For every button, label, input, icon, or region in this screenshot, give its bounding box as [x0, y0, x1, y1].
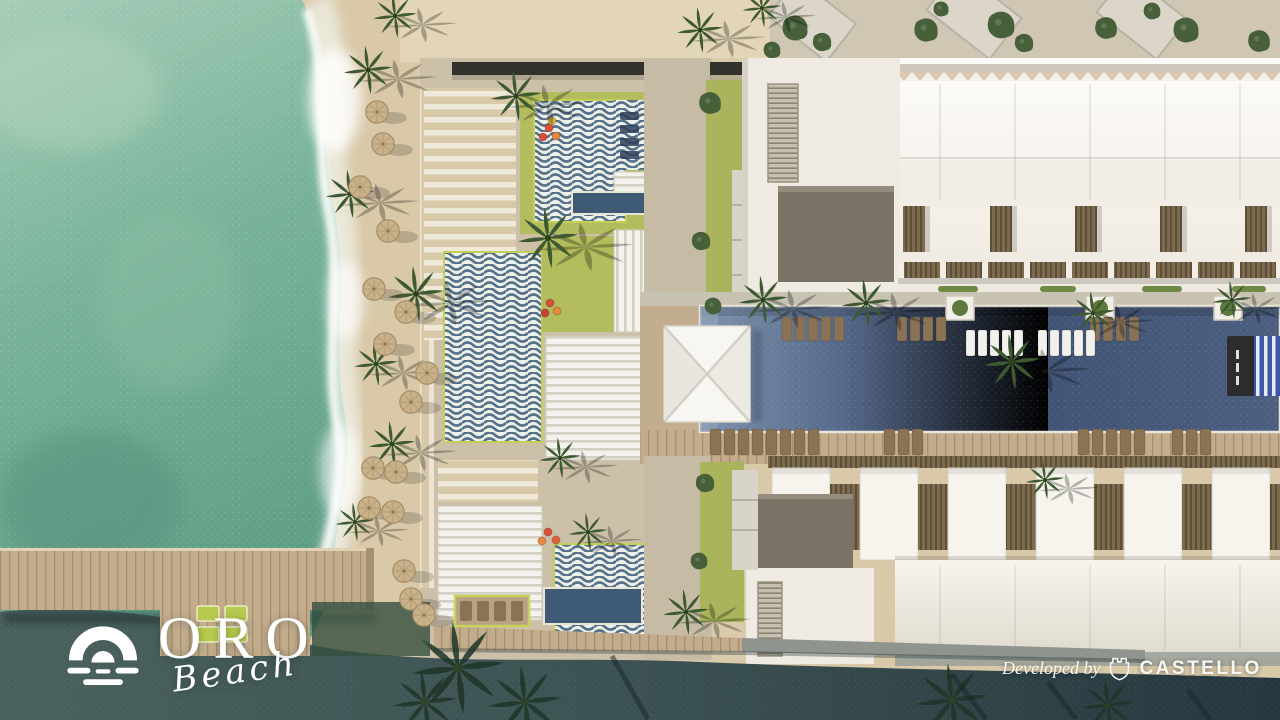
lounger-platform — [455, 596, 529, 626]
balcony-band-north — [898, 262, 1280, 278]
rooftop-box-south — [755, 494, 853, 568]
sun-lounger — [766, 429, 777, 455]
sun-lounger — [494, 601, 506, 621]
scalloped-shade-roof — [900, 72, 1280, 81]
villa-balcony — [1006, 484, 1036, 550]
balcony-divider — [898, 262, 904, 278]
sun-lounger — [1200, 429, 1211, 455]
sun-lounger — [1092, 429, 1103, 455]
sun-lounger — [1086, 330, 1095, 356]
beanbag — [544, 528, 552, 536]
balcony-divider — [982, 262, 988, 278]
sun-lounger — [966, 330, 975, 356]
sun-lounger — [738, 429, 749, 455]
castle-shield-icon — [1109, 656, 1130, 681]
balcony-vent — [990, 206, 1012, 252]
balcony-vent — [1075, 206, 1097, 252]
balcony-divider — [1276, 262, 1280, 278]
balcony-divider — [1150, 262, 1156, 278]
straw-umbrella — [372, 133, 394, 155]
tree — [691, 553, 708, 570]
beanbag — [538, 537, 546, 545]
sun-lounger — [912, 429, 923, 455]
villa-balcony — [1270, 484, 1280, 550]
sun-lounger — [710, 429, 721, 455]
planter-hedge — [1232, 286, 1266, 292]
sun-lounger — [808, 429, 819, 455]
neighbour-buildings-strip — [764, 0, 1280, 62]
villa-roof — [948, 468, 1006, 560]
straw-umbrella — [395, 301, 417, 323]
daybed — [620, 138, 639, 146]
planter-hedge — [1142, 286, 1182, 292]
tree — [813, 33, 831, 51]
balcony-divider — [1066, 262, 1072, 278]
villa-roof-edge — [1212, 468, 1270, 474]
straw-umbrella — [374, 333, 396, 355]
balcony-divider — [1192, 262, 1198, 278]
straw-umbrella — [349, 176, 371, 198]
balcony-vent — [903, 206, 925, 252]
sun-lounger — [1186, 429, 1197, 455]
rooftop-box-north — [778, 186, 894, 282]
tree — [764, 42, 781, 59]
sun-lounger — [460, 601, 472, 621]
villa-roof-edge — [948, 468, 1006, 474]
villa-roof-edge — [772, 468, 830, 474]
plunge-pool-south — [544, 588, 642, 624]
tree — [1174, 18, 1199, 43]
developer-name: CASTELLO — [1139, 658, 1261, 680]
tree — [692, 232, 710, 250]
bar-sign — [1236, 350, 1239, 359]
pool-bar — [1227, 336, 1280, 396]
straw-umbrella — [362, 457, 384, 479]
rooftop-vent-north — [768, 84, 798, 182]
tree — [1144, 3, 1161, 20]
aerial-resort-render: ORO Beach Developed by CASTELLO — [0, 0, 1280, 720]
tree — [1015, 34, 1033, 52]
main-pool-area — [640, 292, 1280, 464]
planter-hedge — [938, 286, 978, 292]
tree — [914, 18, 937, 41]
tree — [696, 474, 714, 492]
developed-by-label: Developed by — [1002, 658, 1100, 679]
sun-lounger — [1134, 429, 1145, 455]
sun-lounger — [1062, 330, 1071, 356]
sun-lounger — [1050, 330, 1059, 356]
beanbag — [552, 132, 560, 140]
balcony-vent — [1160, 206, 1182, 252]
bar-awning — [1254, 336, 1280, 396]
beanbag — [539, 133, 547, 141]
tree — [699, 92, 721, 114]
villa-balcony — [1182, 484, 1212, 550]
sun-lounger — [923, 317, 933, 341]
villa-roof — [1212, 468, 1270, 560]
sun-lounger — [1106, 429, 1117, 455]
pool-canopy — [664, 326, 762, 422]
villa-balcony — [918, 484, 948, 550]
villa-roof-edge — [1124, 468, 1182, 474]
sun-lounger — [1120, 429, 1131, 455]
tree — [1248, 30, 1270, 52]
building-north — [644, 58, 1280, 310]
vent-shadow — [1182, 206, 1187, 252]
beanbag — [541, 309, 549, 317]
beanbag — [546, 299, 554, 307]
straw-umbrella — [377, 220, 399, 242]
tree — [705, 298, 722, 315]
sun-lounger — [724, 429, 735, 455]
sun-lounger — [834, 317, 844, 341]
sun-lounger — [752, 429, 763, 455]
tree — [988, 12, 1015, 39]
balcony-divider — [1024, 262, 1030, 278]
balcony-divider — [1234, 262, 1240, 278]
balcony-divider — [1108, 262, 1114, 278]
sun-lounger — [884, 429, 895, 455]
tree — [1095, 17, 1117, 39]
sun-lounger — [782, 317, 792, 341]
balcony-vent — [1245, 206, 1267, 252]
beanbag — [553, 307, 561, 315]
beanbag — [552, 536, 560, 544]
sun-lounger — [936, 317, 946, 341]
straw-umbrella — [382, 501, 404, 523]
sun-lounger — [1074, 330, 1083, 356]
villa-balcony — [1094, 484, 1124, 550]
sun-lounger — [1172, 429, 1183, 455]
vent-shadow — [1097, 206, 1102, 252]
planter-plant — [952, 300, 968, 316]
daybed — [620, 125, 639, 133]
straw-umbrella — [363, 278, 385, 300]
daybed — [620, 151, 639, 159]
vent-shadow — [1012, 206, 1017, 252]
sun-lounger — [477, 601, 489, 621]
villa-roof — [860, 468, 918, 560]
daybed — [620, 112, 639, 120]
vent-shadow — [925, 206, 930, 252]
straw-umbrella — [366, 101, 388, 123]
sun-lounger — [898, 429, 909, 455]
plunge-pool-north — [572, 192, 656, 214]
straw-umbrella — [416, 362, 438, 384]
sun-over-waves-icon — [60, 608, 146, 696]
sun-lounger — [511, 601, 523, 621]
villa-roof-edge — [860, 468, 918, 474]
balcony-divider — [940, 262, 946, 278]
sun-lounger — [808, 317, 818, 341]
developer-watermark: Developed by CASTELLO — [1002, 656, 1262, 681]
straw-umbrella — [400, 391, 422, 413]
sun-lounger — [780, 429, 791, 455]
tree — [934, 2, 949, 17]
straw-umbrella — [385, 461, 407, 483]
straw-umbrella — [358, 497, 380, 519]
straw-umbrella — [393, 560, 415, 582]
villa-roof — [1124, 468, 1182, 560]
sun-lounger — [1078, 429, 1089, 455]
sun-lounger — [794, 429, 805, 455]
oro-beach-logo: ORO Beach — [60, 608, 321, 696]
sun-lounger — [978, 330, 987, 356]
straw-umbrella — [413, 604, 435, 626]
vent-shadow — [1267, 206, 1272, 252]
planter-hedge — [1040, 286, 1076, 292]
